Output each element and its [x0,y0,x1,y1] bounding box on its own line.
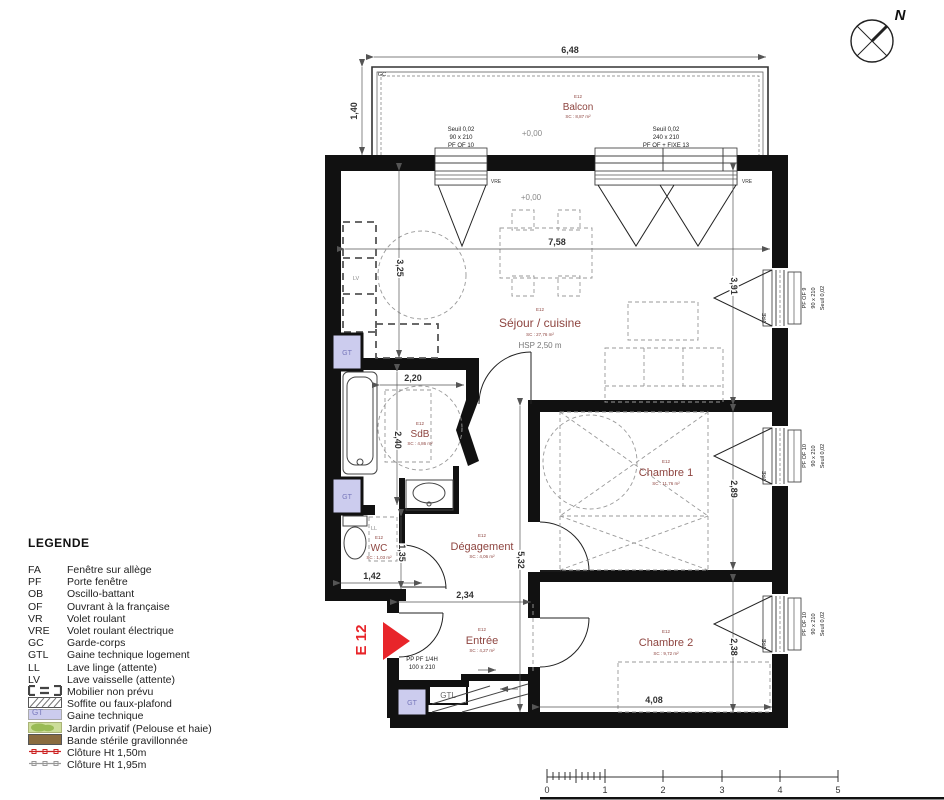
svg-text:3,25: 3,25 [395,259,405,277]
svg-text:SC : 4,86 m²: SC : 4,86 m² [407,441,433,446]
legend: LEGENDE FA Fenêtre sur allège PF Porte f… [28,536,298,771]
svg-text:WC: WC [371,543,388,554]
svg-text:1,40: 1,40 [349,102,359,120]
legend-item-mobilier: Mobilier non prévu [28,686,298,698]
svg-text:Seuil 0,02: Seuil 0,02 [653,127,680,133]
legend-item-vr: VR Volet roulant [28,613,298,625]
chambre1-furniture [543,412,708,570]
chambre2-label: E12 Chambre 2 SC : 9,72 m² [639,629,693,656]
svg-text:Balcon: Balcon [563,102,594,113]
legend-item-of: OF Ouvrant à la française [28,601,298,613]
svg-text:90 x 210: 90 x 210 [449,135,473,141]
svg-text:2,89: 2,89 [729,480,739,498]
svg-text:SC : 27,76 m²: SC : 27,76 m² [526,332,554,337]
ceiling-height: HSP 2,50 m [519,341,562,350]
svg-text:3: 3 [719,785,724,795]
vre-label: VRE [762,470,768,481]
balcony-window-right: Seuil 0,02 240 x 210 PF OF + FIXE 13 VRE [595,127,753,246]
legend-item-ll: LL Lave linge (attente) [28,662,298,674]
legend-item-soffite: Soffite ou faux-plafond [28,698,298,710]
svg-text:90 x 210: 90 x 210 [811,445,817,466]
vre-label: VRE [762,638,768,649]
vre-label: VRE [762,312,768,323]
compass: N [851,7,907,62]
svg-text:2,40: 2,40 [393,431,403,449]
svg-text:SC : 1,03 m²: SC : 1,03 m² [366,555,392,560]
svg-text:Entrée: Entrée [466,635,498,647]
svg-text:GT: GT [342,494,352,501]
balcony-room-label: E12 Balcon SC : 8,87 m² [563,94,594,119]
sejour-furniture [500,210,723,402]
vre-label: VRE [491,179,502,185]
chambre2-furniture [618,662,770,712]
svg-text:3,91: 3,91 [729,277,739,295]
legend-item-fa: FA Fenêtre sur allège [28,564,298,576]
svg-text:SC : 4,27 m²: SC : 4,27 m² [469,648,495,653]
svg-text:PP PF 1/4H: PP PF 1/4H [406,657,438,663]
chambre1-label: E12 Chambre 1 SC : 11,76 m² [639,459,693,486]
svg-text:E12: E12 [574,94,583,99]
svg-text:Chambre 2: Chambre 2 [639,637,693,649]
sheet-footer-line [540,797,944,800]
svg-text:E12: E12 [416,421,425,426]
sdb-furniture [378,386,462,470]
svg-text:2,34: 2,34 [456,590,474,600]
svg-text:E12: E12 [478,533,487,538]
degagement-label: E12 Dégagement SC : 4,06 m² [451,533,514,559]
svg-text:4,08: 4,08 [645,695,663,705]
scale-bar: 0 1 2 3 4 5 [544,769,840,795]
svg-text:SdB: SdB [411,429,430,440]
svg-text:SC : 8,87 m²: SC : 8,87 m² [565,114,591,119]
svg-text:2,20: 2,20 [404,373,422,383]
balcony-window-left: Seuil 0,02 90 x 210 PF OF 10 VRE [435,127,502,246]
cloture-195-swatch-icon [28,758,67,772]
dim-balcony-width: 6,48 [374,45,766,57]
svg-text:2: 2 [660,785,665,795]
wc-label: E12 WC SC : 1,03 m² [366,535,392,560]
entrance-arrow [383,622,410,660]
ll-label: LL [371,526,377,532]
north-label: N [895,7,907,24]
svg-text:Dégagement: Dégagement [451,541,514,553]
dim-balcony-depth: 1,40 [349,67,362,155]
svg-text:PF OF 10: PF OF 10 [448,143,475,149]
svg-text:2,38: 2,38 [729,638,739,656]
legend-title: LEGENDE [28,536,298,550]
legend-item-gt: GT Gaine technique [28,710,298,722]
legend-item-cloture-195: Clôture Ht 1,95m [28,759,298,771]
legend-item-vre: VRE Volet roulant électrique [28,625,298,637]
svg-text:5: 5 [835,785,840,795]
legend-item-bande: Bande stérile gravillonnée [28,735,298,747]
entree-label: E12 Entrée SC : 4,27 m² [466,627,498,653]
svg-text:6,48: 6,48 [561,45,579,55]
floor-plan-sheet: GC 6,48 1,40 E12 Balcon SC : 8,87 m² +0,… [0,0,944,800]
svg-text:0: 0 [544,785,549,795]
svg-text:E12: E12 [478,627,487,632]
svg-text:7,58: 7,58 [548,237,566,247]
level-sejour: +0,00 [521,193,542,202]
gt-duct-2: GT [332,478,362,514]
svg-text:PF OF 10: PF OF 10 [802,444,808,468]
legend-item-pf: PF Porte fenêtre [28,576,298,588]
right-window-chambre1: Seuil 0,02 90 x 210 PF OF 10 VRE [714,428,826,484]
svg-text:SC : 4,06 m²: SC : 4,06 m² [469,554,495,559]
unit-number: E 12 [353,625,370,656]
svg-text:4: 4 [777,785,782,795]
toilet [343,516,367,559]
gt-duct-3: GT [397,688,427,716]
level-balcony: +0,00 [522,129,543,138]
svg-text:Séjour / cuisine: Séjour / cuisine [499,316,581,330]
vre-label: VRE [742,179,753,185]
svg-text:GT: GT [342,350,352,357]
bathtub [343,372,377,474]
svg-text:SC : 11,76 m²: SC : 11,76 m² [652,481,680,486]
svg-text:Seuil 0,02: Seuil 0,02 [820,612,826,636]
svg-text:Seuil 0,02: Seuil 0,02 [448,127,475,133]
washbasin [406,480,453,510]
svg-text:PF OF + FIXE 13: PF OF + FIXE 13 [643,143,690,149]
svg-text:90 x 210: 90 x 210 [811,287,817,308]
svg-text:Seuil 0,02: Seuil 0,02 [820,286,826,310]
svg-text:Seuil 0,02: Seuil 0,02 [820,444,826,468]
svg-text:1,42: 1,42 [363,571,381,581]
svg-text:PF OF 10: PF OF 10 [802,612,808,636]
svg-text:240 x 210: 240 x 210 [653,135,680,141]
legend-item-gtl: GTL Gaine technique logement [28,649,298,661]
legend-item-cloture-150: Clôture Ht 1,50m [28,747,298,759]
gc-label: GC [378,72,386,78]
lv-label: LV [353,276,360,282]
svg-text:E12: E12 [536,307,545,312]
svg-text:90 x 210: 90 x 210 [811,613,817,634]
sejour-label: E12 Séjour / cuisine SC : 27,76 m² HSP 2… [499,307,581,350]
svg-text:Chambre 1: Chambre 1 [639,467,693,479]
legend-item-jardin: Jardin privatif (Pelouse et haie) [28,722,298,734]
svg-text:1,35: 1,35 [397,544,407,562]
svg-text:E12: E12 [662,629,671,634]
svg-text:5,32: 5,32 [516,551,526,569]
dimension-lines: 7,58 3,25 3,91 2,20 2,40 2,89 1,35 1,42 … [341,171,772,712]
sdb-label: E12 SdB SC : 4,86 m² [407,421,433,446]
svg-text:E12: E12 [375,535,384,540]
svg-text:100 x 210: 100 x 210 [409,665,436,671]
svg-text:GT: GT [407,700,417,707]
gt-duct-1: GT [332,334,362,370]
svg-text:SC : 9,72 m²: SC : 9,72 m² [653,651,679,656]
legend-item-ob: OB Oscillo-battant [28,588,298,600]
svg-text:E12: E12 [662,459,671,464]
legend-item-lv: LV Lave vaisselle (attente) [28,674,298,686]
svg-text:PF OF 9: PF OF 9 [802,288,808,309]
legend-item-gc: GC Garde-corps [28,637,298,649]
svg-text:1: 1 [602,785,607,795]
